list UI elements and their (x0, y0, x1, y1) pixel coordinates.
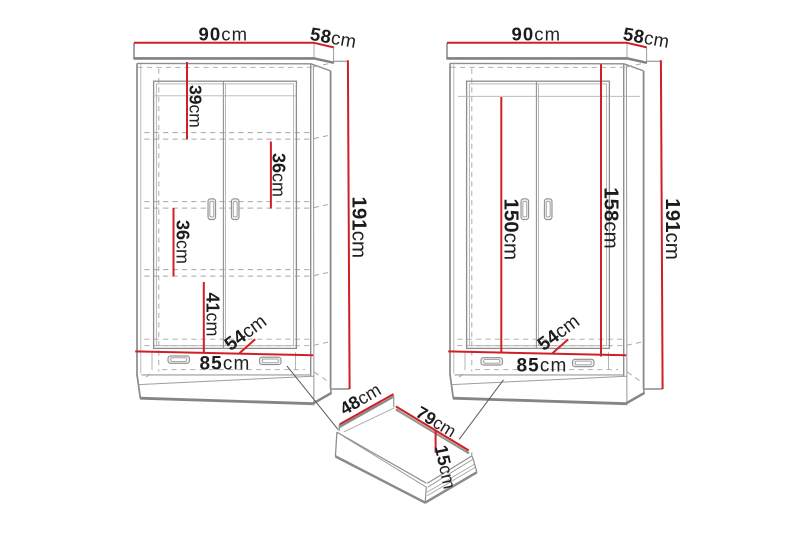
svg-text:150cm: 150cm (500, 199, 523, 261)
svg-text:36cm: 36cm (172, 220, 192, 264)
svg-text:85cm: 85cm (517, 355, 568, 376)
svg-text:90cm: 90cm (512, 24, 562, 45)
svg-text:85cm: 85cm (200, 353, 251, 374)
svg-text:41cm: 41cm (203, 293, 223, 337)
svg-text:90cm: 90cm (199, 24, 249, 45)
svg-text:158cm: 158cm (599, 187, 622, 249)
svg-text:39cm: 39cm (186, 85, 206, 128)
svg-text:191cm: 191cm (661, 198, 684, 260)
svg-text:191cm: 191cm (348, 197, 371, 259)
svg-text:36cm: 36cm (268, 153, 288, 197)
